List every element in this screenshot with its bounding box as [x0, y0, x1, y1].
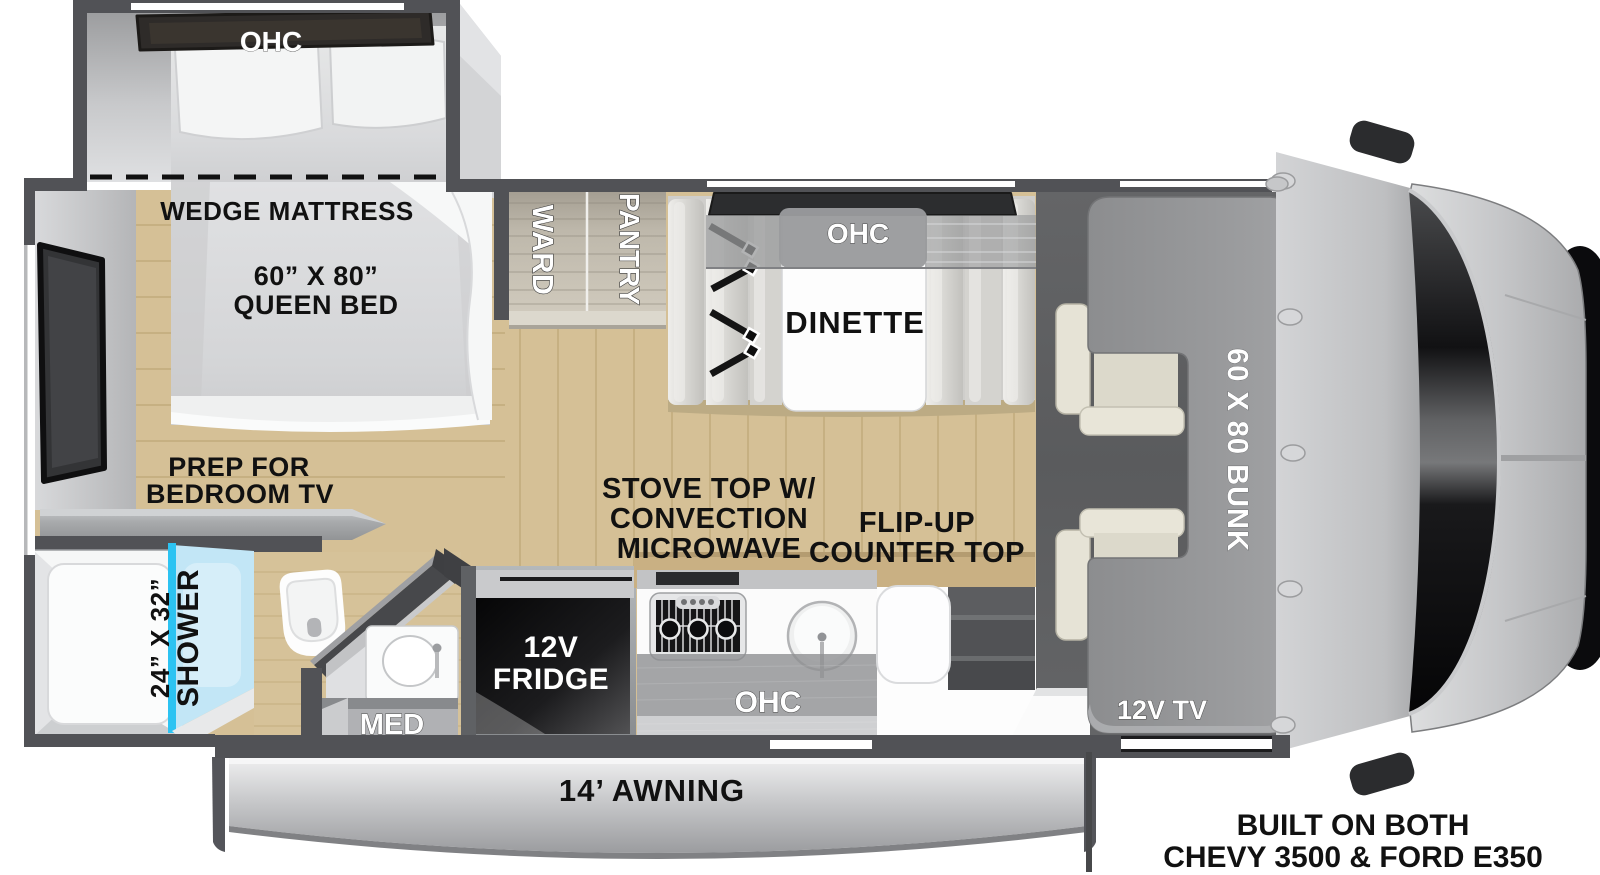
- svg-text:BUILT ON BOTH: BUILT ON BOTH: [1237, 809, 1470, 842]
- svg-text:PANTRY: PANTRY: [614, 193, 645, 305]
- svg-text:OHC: OHC: [735, 686, 802, 719]
- svg-text:60 X 80 BUNK: 60 X 80 BUNK: [1221, 348, 1253, 552]
- svg-text:QUEEN BED: QUEEN BED: [233, 290, 398, 320]
- svg-text:OHC: OHC: [240, 26, 302, 57]
- svg-text:SHOWER: SHOWER: [172, 569, 205, 707]
- svg-text:DINETTE: DINETTE: [785, 305, 925, 340]
- svg-text:60” X 80”: 60” X 80”: [254, 261, 379, 291]
- svg-text:FRIDGE: FRIDGE: [493, 663, 609, 696]
- svg-text:WEDGE MATTRESS: WEDGE MATTRESS: [160, 196, 414, 226]
- svg-text:OHC: OHC: [827, 218, 889, 249]
- svg-text:BEDROOM TV: BEDROOM TV: [146, 479, 334, 509]
- svg-text:12V: 12V: [524, 631, 579, 664]
- svg-text:WARD: WARD: [526, 205, 558, 296]
- svg-text:FLIP-UP: FLIP-UP: [859, 507, 975, 539]
- svg-text:PREP FOR: PREP FOR: [168, 452, 310, 482]
- svg-text:CHEVY 3500 & FORD E350: CHEVY 3500 & FORD E350: [1163, 841, 1543, 874]
- svg-text:STOVE TOP W/: STOVE TOP W/: [602, 473, 816, 505]
- svg-text:14’ AWNING: 14’ AWNING: [559, 773, 745, 808]
- svg-text:12V TV: 12V TV: [1117, 695, 1207, 725]
- svg-text:MICROWAVE: MICROWAVE: [617, 533, 801, 565]
- svg-text:24” X 32”: 24” X 32”: [145, 578, 175, 698]
- svg-text:COUNTER TOP: COUNTER TOP: [809, 537, 1025, 569]
- svg-text:CONVECTION: CONVECTION: [610, 503, 808, 535]
